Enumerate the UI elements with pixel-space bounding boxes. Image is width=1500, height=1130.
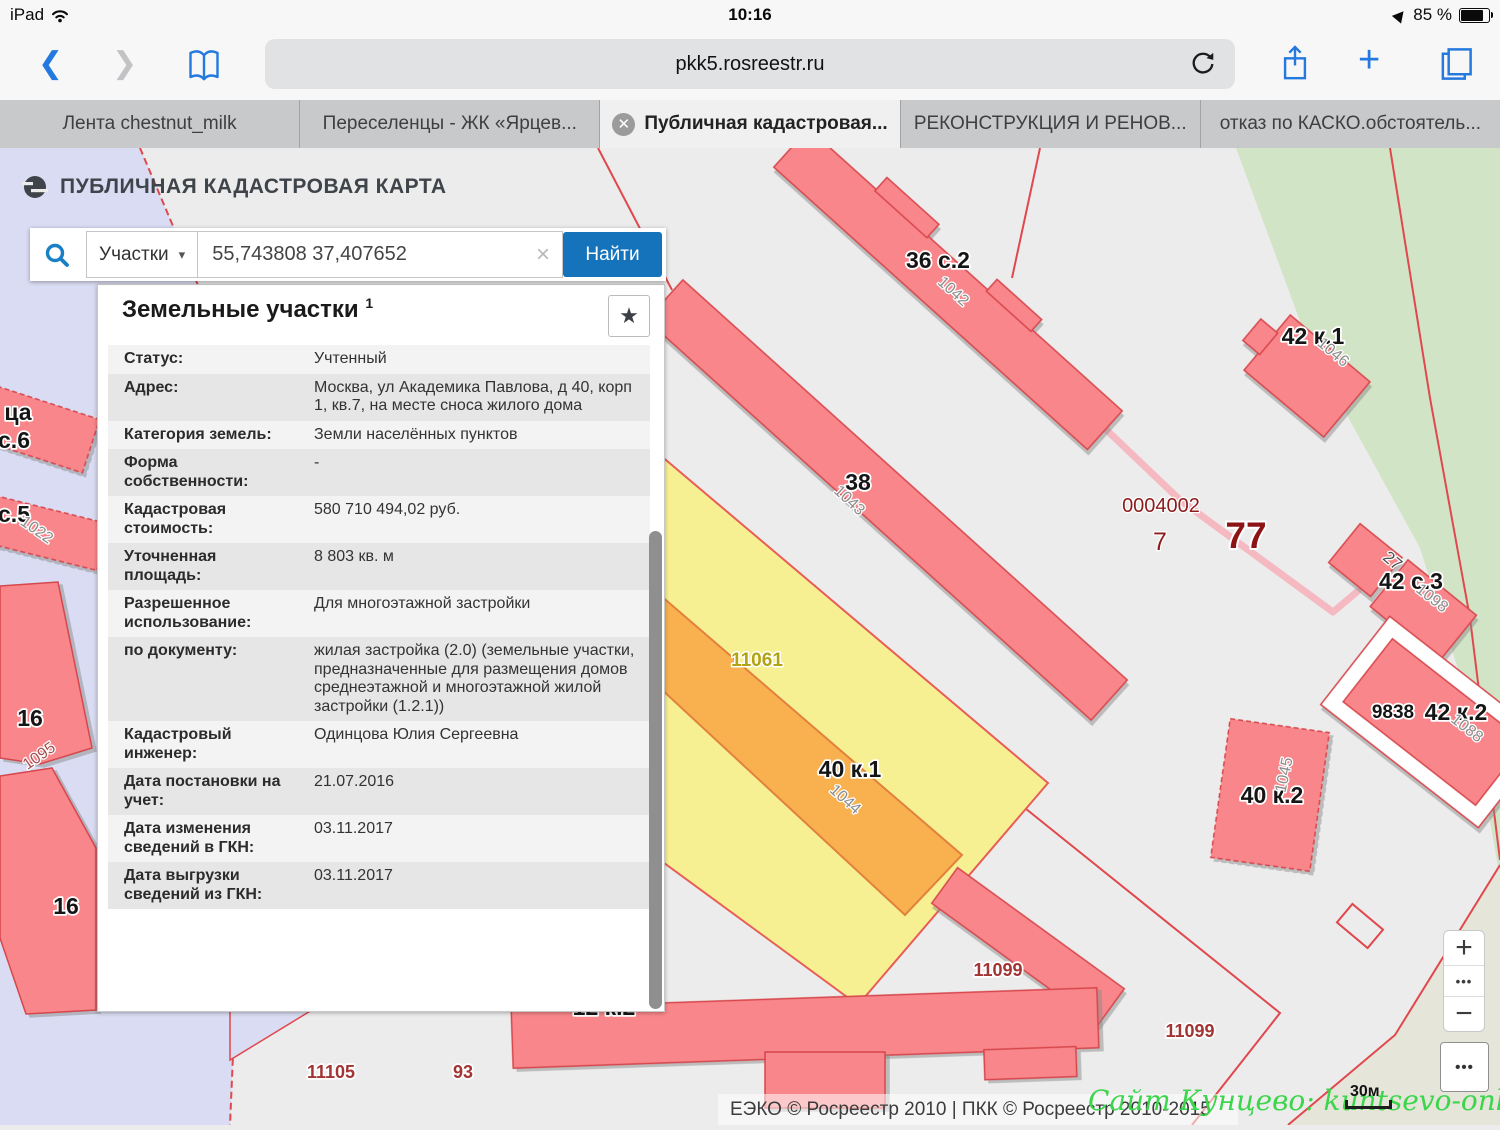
row-label: Разрешенное использование: xyxy=(108,595,314,632)
row-value: 03.11.2017 xyxy=(314,820,650,857)
row-value: 21.07.2016 xyxy=(314,773,650,810)
search-icon[interactable] xyxy=(44,242,70,268)
map-label: 9838 xyxy=(1372,702,1414,723)
panel-scrollbar[interactable] xyxy=(649,531,662,1009)
map-label: 0004002 xyxy=(1122,495,1200,517)
row-label: Категория земель: xyxy=(108,426,314,445)
map-title: ПУБЛИЧНАЯ КАДАСТРОВАЯ КАРТА xyxy=(60,175,447,199)
clear-icon[interactable]: × xyxy=(536,241,550,269)
map-zoom-control: + ••• − xyxy=(1443,930,1485,1032)
row-value: жилая застройка (2.0) (земельные участки… xyxy=(314,642,650,716)
map-label: 11105 xyxy=(307,1062,355,1082)
star-icon: ★ xyxy=(619,303,639,329)
map-label: 40 к.2 xyxy=(1241,782,1304,808)
row-label: Форма собственности: xyxy=(108,454,314,491)
row-value: Москва, ул Академика Павлова, д 40, корп… xyxy=(314,379,650,416)
row-label: Статус: xyxy=(108,350,314,369)
search-category-label: Участки xyxy=(99,244,169,266)
map-label: 93 xyxy=(453,1062,473,1082)
row-label: Кадастровая стоимость: xyxy=(108,501,314,538)
tab-kasko[interactable]: отказ по КАСКО.обстоятель... xyxy=(1201,100,1500,148)
table-row: Дата изменения сведений в ГКН:03.11.2017 xyxy=(108,815,650,862)
tab-bar: Лента chestnut_milk Переселенцы - ЖК «Яр… xyxy=(0,100,1500,148)
battery-percent: 85 % xyxy=(1413,5,1452,25)
row-value: Земли населённых пунктов xyxy=(314,426,650,445)
map-label: 11061 xyxy=(731,650,783,671)
row-value: - xyxy=(314,454,650,491)
favorite-button[interactable]: ★ xyxy=(608,295,650,337)
row-value: Одинцова Юлия Сергеевна xyxy=(314,726,650,763)
map-label: 11099 xyxy=(1165,1021,1214,1041)
map-header: ПУБЛИЧНАЯ КАДАСТРОВАЯ КАРТА xyxy=(22,173,447,201)
watermark: Сайт Кунцево: kuntsevo-online.ru xyxy=(1088,1084,1500,1117)
map-label: 16 xyxy=(53,893,79,919)
row-label: Дата постановки на учет: xyxy=(108,773,314,810)
bookmarks-icon[interactable] xyxy=(186,46,222,84)
row-value: 580 710 494,02 руб. xyxy=(314,501,650,538)
table-row: Форма собственности:- xyxy=(108,449,650,496)
map-label: 16 xyxy=(17,705,43,731)
search-bar: Участки ▾ 55,743808 37,407652 × Найти xyxy=(30,228,666,281)
search-category-dropdown[interactable]: Участки ▾ xyxy=(86,231,198,278)
parcel-attributes-table: Статус:УчтенныйАдрес:Москва, ул Академик… xyxy=(108,345,650,997)
status-bar: iPad 10:16 85 % xyxy=(0,0,1500,30)
scale-bar xyxy=(1345,1100,1392,1109)
row-label: Уточненная площадь: xyxy=(108,548,314,585)
clock: 10:16 xyxy=(0,5,1500,25)
zoom-in-button[interactable]: + xyxy=(1444,931,1484,966)
new-tab-icon[interactable]: + xyxy=(1358,39,1380,82)
map-label: 77 xyxy=(1225,515,1266,556)
rosreestr-logo-icon xyxy=(22,173,48,201)
parcel-info-panel: Земельные участки 1 ★ Статус:УчтенныйАдр… xyxy=(97,284,665,1012)
map-tools-button[interactable]: ••• xyxy=(1440,1042,1489,1092)
battery-icon xyxy=(1459,8,1490,23)
location-icon xyxy=(1392,7,1408,23)
search-input[interactable]: 55,743808 37,407652 × xyxy=(198,231,563,278)
table-row: Разрешенное использование:Для многоэтажн… xyxy=(108,590,650,637)
table-row: Кадастровая стоимость:580 710 494,02 руб… xyxy=(108,496,650,543)
tabs-icon[interactable] xyxy=(1437,44,1475,84)
scale-label: 30м xyxy=(1350,1083,1380,1101)
table-row: Категория земель:Земли населённых пункто… xyxy=(108,421,650,450)
tab-kadastrovaya[interactable]: ✕ Публичная кадастровая... xyxy=(600,100,900,148)
row-value: 03.11.2017 xyxy=(314,867,650,904)
back-icon[interactable]: ❮ xyxy=(38,44,63,84)
result-count: 1 xyxy=(365,295,373,311)
map-label: с.6 xyxy=(0,427,30,453)
zoom-slider-button[interactable]: ••• xyxy=(1444,966,1484,997)
close-tab-icon[interactable]: ✕ xyxy=(612,113,635,136)
table-row: Адрес:Москва, ул Академика Павлова, д 40… xyxy=(108,374,650,421)
row-value: Для многоэтажной застройки xyxy=(314,595,650,632)
panel-title: Земельные участки 1 xyxy=(122,295,373,324)
table-row: Статус:Учтенный xyxy=(108,345,650,374)
map-label: 36 с.2 xyxy=(906,247,970,273)
reload-icon[interactable] xyxy=(1189,50,1217,78)
search-query-text: 55,743808 37,407652 xyxy=(212,243,407,266)
tab-lenta[interactable]: Лента chestnut_milk xyxy=(0,100,300,148)
row-label: Дата изменения сведений в ГКН: xyxy=(108,820,314,857)
share-icon[interactable] xyxy=(1278,43,1312,85)
table-row: Уточненная площадь:8 803 кв. м xyxy=(108,543,650,590)
map-label: 7 xyxy=(1153,528,1167,556)
table-row: по документу:жилая застройка (2.0) (земе… xyxy=(108,637,650,721)
table-row: Дата выгрузки сведений из ГКН:03.11.2017 xyxy=(108,862,650,909)
zoom-out-button[interactable]: − xyxy=(1444,997,1484,1031)
row-value: 8 803 кв. м xyxy=(314,548,650,585)
row-value: Учтенный xyxy=(314,350,650,369)
table-row: Дата постановки на учет:21.07.2016 xyxy=(108,768,650,815)
forward-icon[interactable]: ❯ xyxy=(112,44,137,84)
tab-rekonstruktsiya[interactable]: РЕКОНСТРУКЦИЯ И РЕНОВ... xyxy=(901,100,1201,148)
row-label: Адрес: xyxy=(108,379,314,416)
search-button[interactable]: Найти xyxy=(563,232,662,277)
url-text: pkk5.rosreestr.ru xyxy=(676,53,825,76)
tab-pereselentsy[interactable]: Переселенцы - ЖК «Ярцев... xyxy=(300,100,600,148)
table-row: Кадастровый инженер:Одинцова Юлия Сергее… xyxy=(108,721,650,768)
map-label: ца xyxy=(4,399,31,425)
address-bar[interactable]: pkk5.rosreestr.ru xyxy=(265,39,1235,89)
row-label: Дата выгрузки сведений из ГКН: xyxy=(108,867,314,904)
row-label: Кадастровый инженер: xyxy=(108,726,314,763)
browser-toolbar: ❮ ❯ pkk5.rosreestr.ru + xyxy=(0,30,1500,100)
row-label: по документу: xyxy=(108,642,314,716)
chevron-down-icon: ▾ xyxy=(179,247,186,263)
map-label: 11099 xyxy=(973,960,1022,980)
map-label: 40 к.1 xyxy=(819,756,882,782)
